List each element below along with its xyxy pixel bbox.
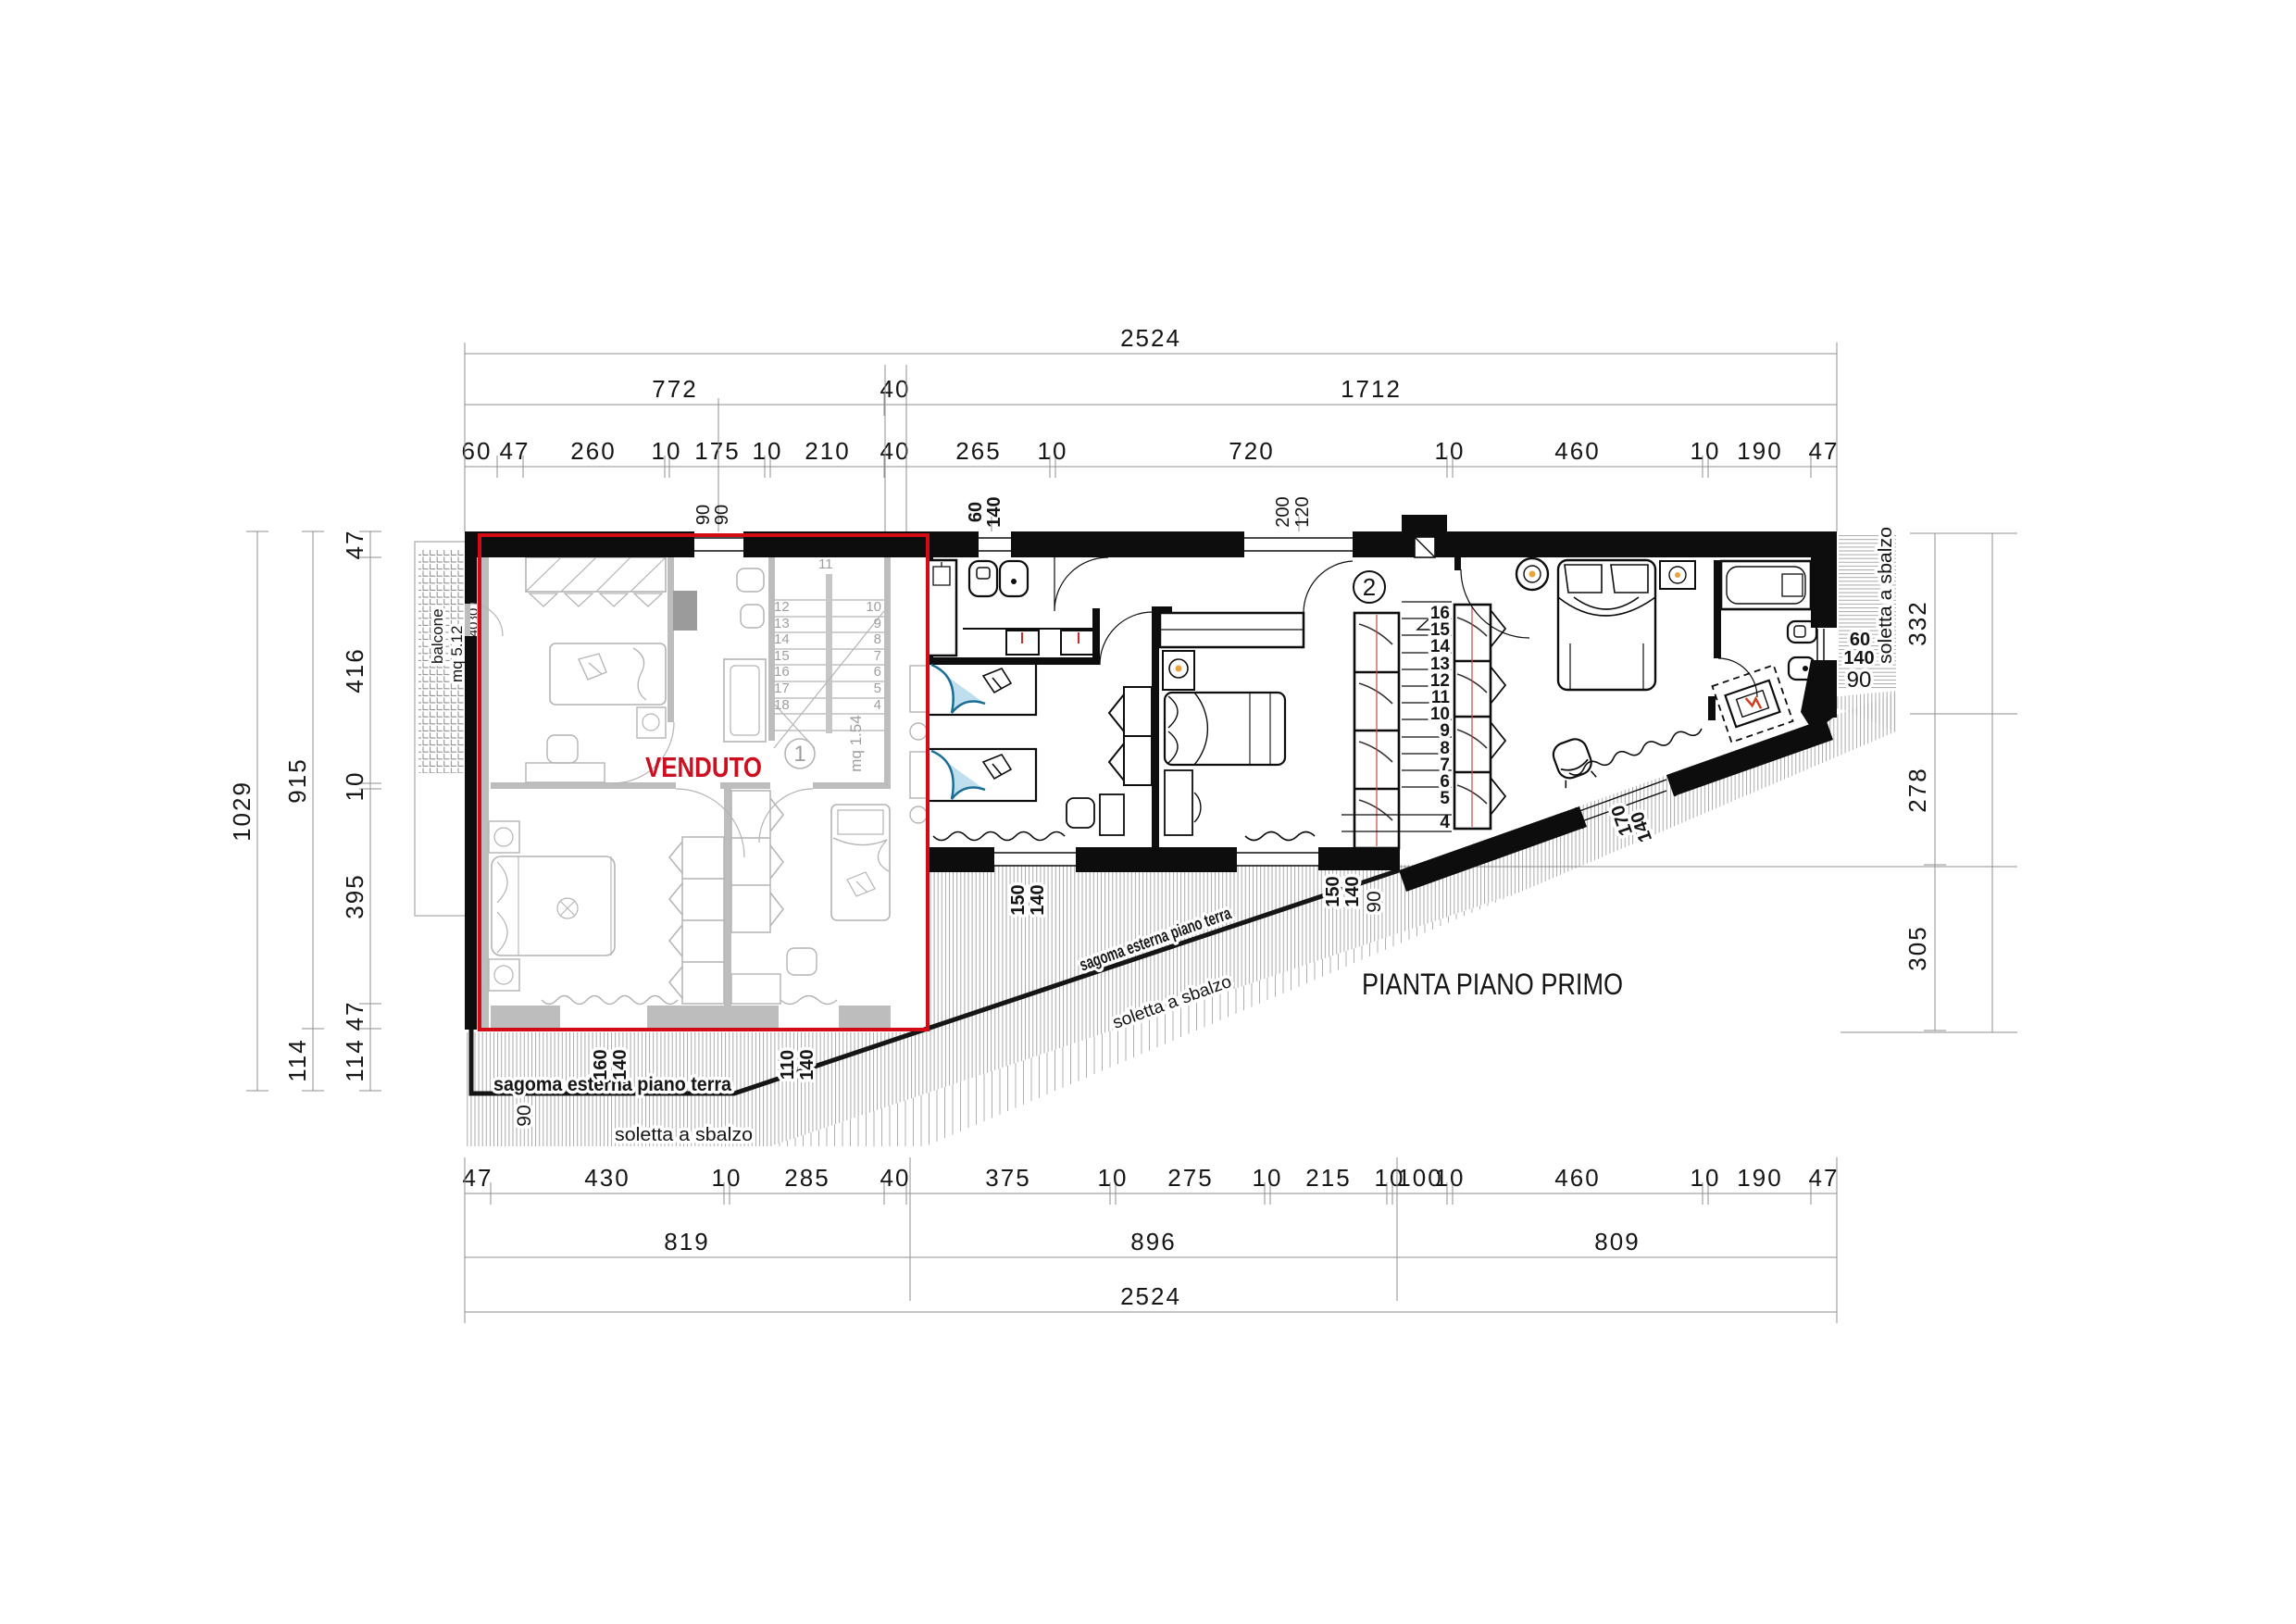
svg-text:90: 90 [1847, 668, 1872, 693]
svg-text:PIANTA PIANO PRIMO: PIANTA PIANO PRIMO [1362, 968, 1623, 1001]
svg-text:47: 47 [463, 1164, 493, 1192]
svg-text:460: 460 [1554, 437, 1600, 465]
svg-text:896: 896 [1130, 1228, 1176, 1255]
svg-text:140: 140 [610, 1049, 630, 1080]
svg-text:175: 175 [694, 437, 740, 465]
svg-text:2524: 2524 [1120, 324, 1181, 352]
svg-text:40: 40 [880, 1164, 911, 1192]
svg-text:soletta a sbalzo: soletta a sbalzo [615, 1125, 753, 1145]
svg-text:720: 720 [1229, 437, 1274, 465]
svg-text:2: 2 [1363, 573, 1376, 601]
svg-text:7: 7 [874, 648, 881, 664]
svg-text:90: 90 [693, 505, 714, 525]
svg-text:332: 332 [1903, 600, 1931, 645]
svg-text:90: 90 [712, 505, 732, 525]
svg-text:soletta a sbalzo: soletta a sbalzo [1876, 527, 1896, 664]
svg-text:12: 12 [774, 599, 790, 615]
svg-text:60: 60 [1850, 630, 1870, 650]
svg-text:809: 809 [1594, 1228, 1640, 1255]
svg-text:120: 120 [1292, 496, 1313, 527]
svg-text:6: 6 [874, 664, 881, 680]
svg-text:17: 17 [774, 681, 790, 696]
svg-text:140: 140 [1843, 648, 1874, 668]
svg-text:1029: 1029 [228, 781, 256, 842]
svg-text:4: 4 [1440, 813, 1450, 832]
svg-text:10: 10 [1098, 1164, 1129, 1192]
svg-text:2524: 2524 [1120, 1282, 1181, 1310]
svg-text:10: 10 [341, 771, 368, 802]
svg-text:90: 90 [514, 1105, 535, 1126]
svg-text:772: 772 [652, 375, 697, 403]
svg-text:4: 4 [874, 697, 881, 713]
svg-text:265: 265 [955, 437, 1001, 465]
svg-text:215: 215 [1305, 1164, 1351, 1192]
svg-text:10: 10 [1253, 1164, 1283, 1192]
svg-text:16: 16 [774, 664, 790, 680]
svg-text:47: 47 [500, 437, 530, 465]
svg-text:60: 60 [966, 502, 986, 522]
svg-text:305: 305 [1903, 925, 1931, 970]
svg-text:819: 819 [664, 1228, 709, 1255]
svg-text:110: 110 [778, 1050, 798, 1080]
svg-text:190: 190 [1737, 1164, 1782, 1192]
svg-text:47: 47 [341, 1001, 368, 1031]
svg-text:1: 1 [793, 742, 805, 767]
svg-text:47: 47 [341, 530, 368, 560]
svg-text:150: 150 [1323, 876, 1343, 906]
svg-text:150: 150 [1008, 884, 1029, 915]
svg-text:8: 8 [874, 631, 881, 647]
svg-text:18: 18 [774, 697, 790, 713]
svg-text:114: 114 [341, 1038, 368, 1081]
svg-text:1712: 1712 [1341, 375, 1402, 403]
svg-text:9: 9 [1440, 721, 1450, 741]
svg-text:14: 14 [1430, 637, 1451, 656]
svg-text:90: 90 [1364, 891, 1385, 912]
svg-text:5: 5 [1440, 789, 1450, 808]
svg-text:10: 10 [866, 599, 881, 615]
svg-text:11: 11 [818, 556, 833, 572]
svg-text:140: 140 [797, 1049, 817, 1080]
svg-text:200: 200 [1273, 496, 1293, 527]
svg-text:260: 260 [570, 437, 616, 465]
svg-text:15: 15 [774, 648, 790, 664]
svg-text:9: 9 [874, 616, 881, 631]
svg-text:10: 10 [1435, 1164, 1466, 1192]
svg-text:285: 285 [784, 1164, 830, 1192]
svg-text:balcone: balcone [429, 608, 446, 664]
svg-text:375: 375 [985, 1164, 1030, 1192]
svg-text:210: 210 [805, 437, 850, 465]
svg-text:5: 5 [874, 681, 881, 696]
svg-text:mq 5.12: mq 5.12 [448, 626, 466, 682]
svg-text:13: 13 [774, 616, 790, 631]
svg-text:430: 430 [584, 1164, 630, 1192]
svg-text:47: 47 [1809, 437, 1840, 465]
svg-text:395: 395 [341, 873, 368, 918]
svg-text:mq 1.54: mq 1.54 [847, 715, 865, 771]
svg-text:10: 10 [1691, 1164, 1721, 1192]
svg-text:460: 460 [1554, 1164, 1600, 1192]
svg-text:190: 190 [1737, 437, 1782, 465]
svg-text:275: 275 [1167, 1164, 1213, 1192]
svg-text:114: 114 [283, 1038, 311, 1081]
svg-text:10: 10 [1038, 437, 1068, 465]
svg-text:140: 140 [1028, 884, 1048, 915]
svg-text:416: 416 [341, 647, 368, 693]
svg-text:10: 10 [1691, 437, 1721, 465]
svg-text:10: 10 [753, 437, 783, 465]
svg-text:10: 10 [1435, 437, 1466, 465]
svg-text:140: 140 [984, 496, 1004, 527]
svg-text:10: 10 [712, 1164, 742, 1192]
svg-text:915: 915 [283, 757, 311, 803]
svg-text:14: 14 [774, 631, 790, 647]
svg-text:47: 47 [1809, 1164, 1840, 1192]
svg-text:10: 10 [652, 437, 682, 465]
svg-text:60: 60 [462, 437, 493, 465]
svg-text:278: 278 [1903, 767, 1931, 812]
svg-text:160: 160 [591, 1049, 611, 1080]
svg-text:140: 140 [1342, 876, 1363, 906]
svg-text:VENDUTO: VENDUTO [645, 751, 762, 783]
